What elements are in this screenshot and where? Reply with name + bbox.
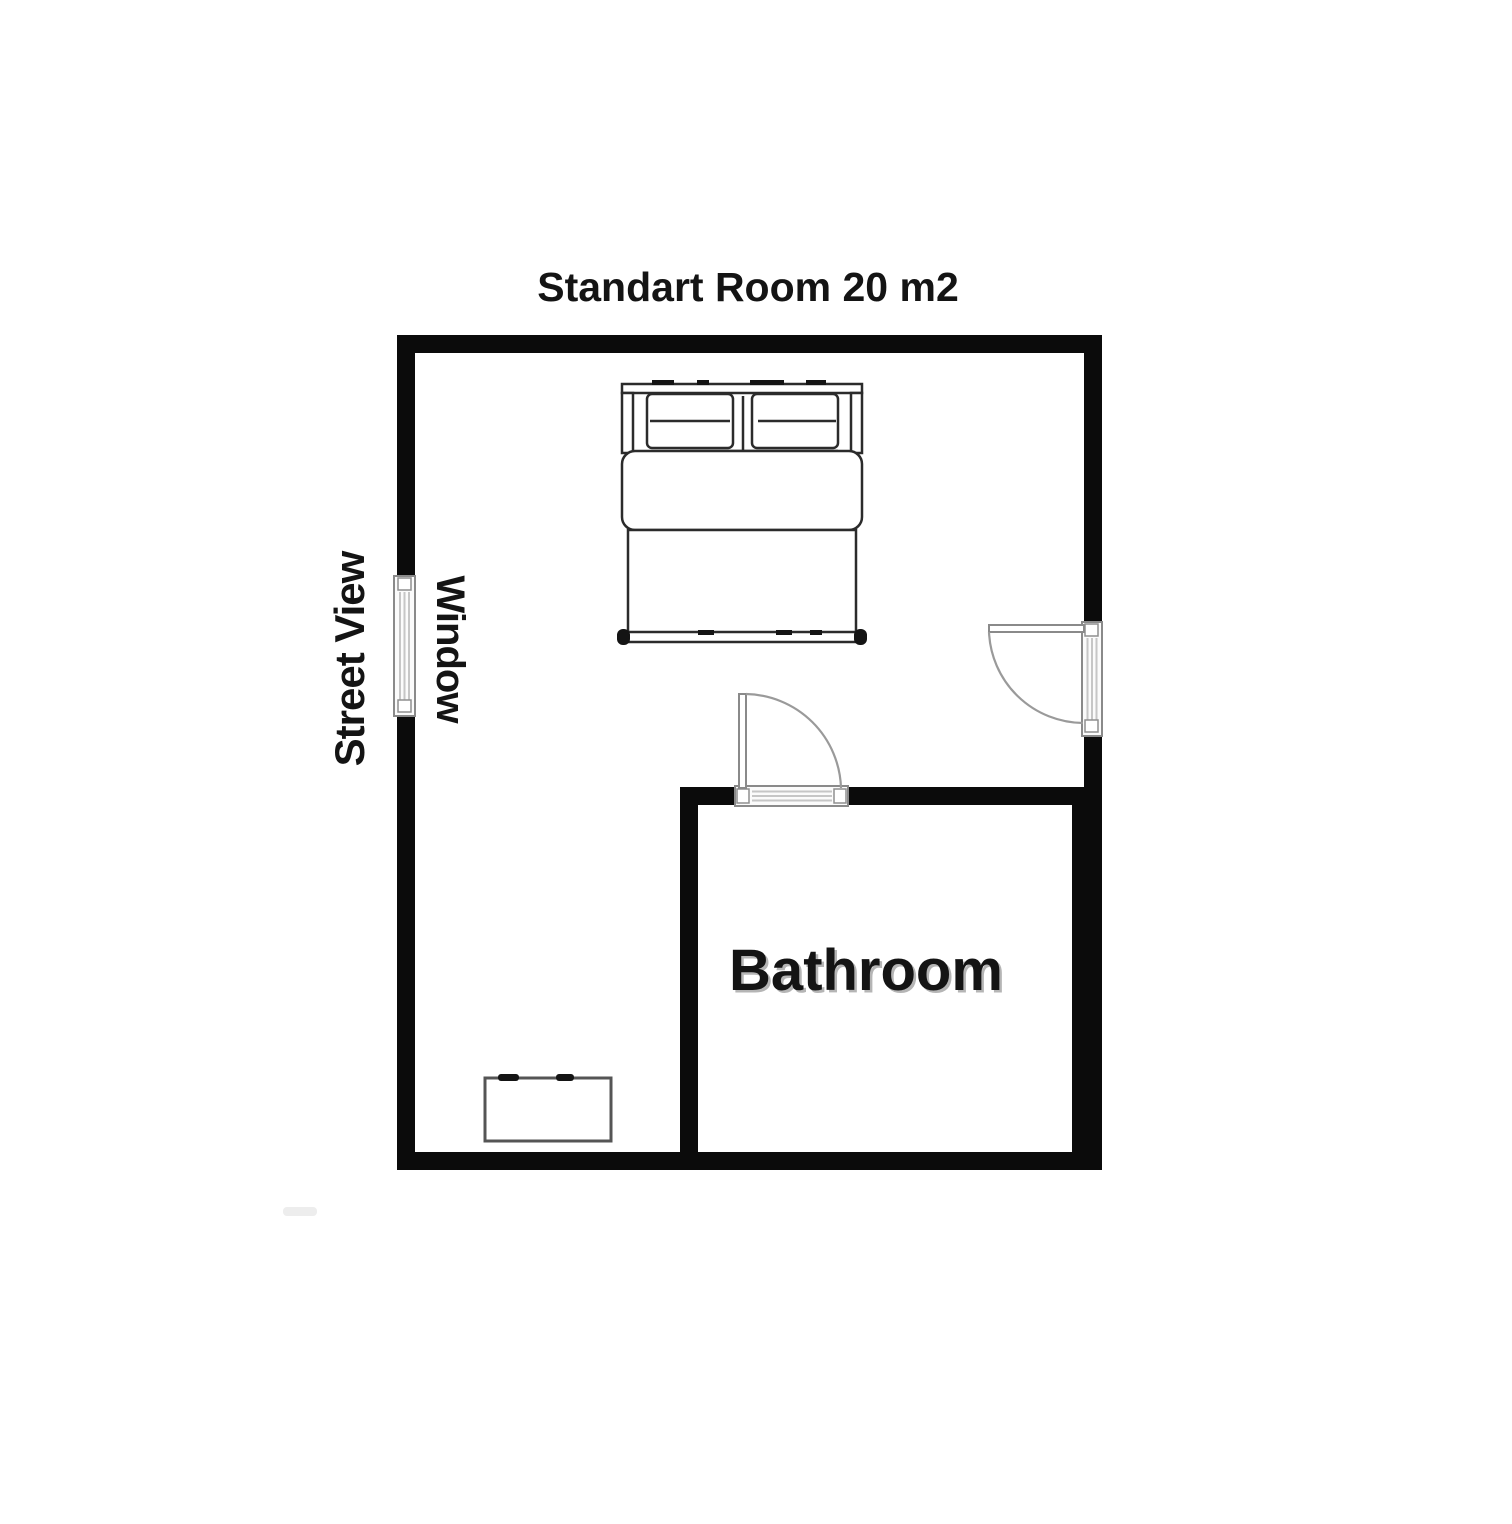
entry-door-swing-arc xyxy=(989,632,1083,723)
bathroom-label: Bathroom xyxy=(729,938,1003,1003)
street-view-label: Street View xyxy=(326,550,373,766)
dresser-handle xyxy=(498,1074,519,1081)
bathroom-wall-left xyxy=(680,787,698,1152)
bed-footboard-cap-left xyxy=(617,629,630,645)
bathroom-door-notch-right xyxy=(834,789,846,803)
wall-left-lower xyxy=(397,716,415,1152)
window-notch-bottom xyxy=(398,700,411,712)
entry-door-notch-bottom xyxy=(1085,720,1098,732)
bathroom-wall-top-right xyxy=(848,787,1072,805)
bed-footboard-cap-right xyxy=(854,629,867,645)
bed-headboard-mark xyxy=(652,380,674,385)
dresser xyxy=(485,1074,611,1141)
dresser-body xyxy=(485,1078,611,1141)
bed-footboard xyxy=(622,632,862,642)
window xyxy=(394,576,415,716)
bed-footboard-mark xyxy=(810,630,822,635)
wall-right-bathroom xyxy=(1072,787,1102,1152)
bed-headboard-mark xyxy=(750,380,784,385)
bed-sheet xyxy=(628,530,856,634)
wall-right-upper xyxy=(1084,335,1102,622)
bed-headboard-mark xyxy=(697,380,709,385)
double-bed xyxy=(617,380,867,645)
wall-bottom xyxy=(397,1152,1102,1170)
window-label: Window xyxy=(428,576,472,725)
entry-door-notch-top xyxy=(1085,624,1098,636)
wall-top xyxy=(397,335,1102,353)
window-notch-top xyxy=(398,578,411,590)
bed-post-right xyxy=(851,393,862,453)
bed-footboard-mark xyxy=(698,630,714,635)
bed-headboard-mark xyxy=(806,380,826,385)
bathroom-door-notch-left xyxy=(737,789,749,803)
entry-door-leaf xyxy=(989,625,1084,632)
floor-plan-title: Standart Room 20 m2 xyxy=(537,264,959,310)
bathroom-door-swing-arc xyxy=(746,694,841,788)
bathroom-door-leaf xyxy=(739,694,746,788)
wall-left-upper xyxy=(397,335,415,578)
dresser-handle xyxy=(556,1074,574,1081)
entry-door xyxy=(989,622,1102,736)
floor-plan-canvas: Standart Room 20 m2 xyxy=(0,0,1512,1524)
bed-duvet xyxy=(622,451,862,530)
bed-post-left xyxy=(622,393,633,453)
bathroom-door xyxy=(735,694,848,806)
wall-right-mid xyxy=(1084,736,1102,787)
bed-headboard xyxy=(622,384,862,393)
bed-footboard-mark xyxy=(776,630,792,635)
scan-artifact xyxy=(283,1207,317,1216)
